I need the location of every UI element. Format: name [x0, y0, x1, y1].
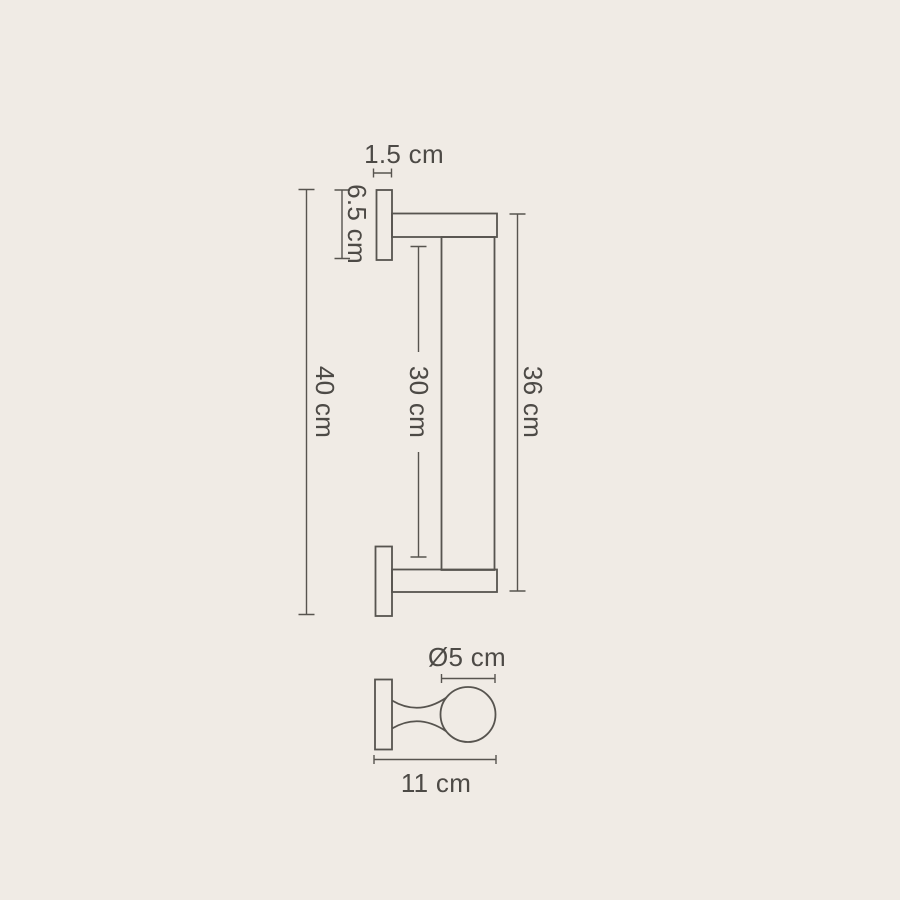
- front-top-arm: [392, 214, 497, 238]
- label-projection-depth: 11 cm: [401, 768, 471, 798]
- front-bottom-arm: [392, 570, 497, 593]
- label-bar-length: 36 cm: [518, 366, 548, 438]
- drawing-canvas: 1.5 cm 6.5 cm 40 cm 30 cm 36 cm Ø5 cm 11…: [0, 0, 900, 900]
- front-top-wall-plate: [377, 190, 393, 260]
- side-neck-bottom-curve: [392, 721, 447, 731]
- dim-line-projection-depth: [374, 755, 496, 764]
- side-wall-plate: [375, 680, 392, 750]
- side-neck-top-curve: [392, 698, 447, 708]
- label-bar-diameter: Ø5 cm: [428, 642, 506, 672]
- label-inner-length: 30 cm: [404, 366, 434, 438]
- dim-line-bar-diameter: [442, 674, 496, 683]
- front-elevation-view: [376, 190, 498, 616]
- dimension-lines: [299, 169, 526, 765]
- side-profile-view: [375, 680, 496, 750]
- front-rail-bar: [442, 237, 495, 570]
- side-bar-end-circle: [441, 687, 496, 742]
- dimension-drawing: 1.5 cm 6.5 cm 40 cm 30 cm 36 cm Ø5 cm 11…: [0, 0, 900, 900]
- label-plate-thickness: 1.5 cm: [364, 139, 444, 169]
- label-plate-height: 6.5 cm: [342, 184, 372, 264]
- front-bottom-wall-plate: [376, 547, 393, 617]
- dim-line-plate-thickness: [374, 169, 392, 178]
- label-overall-height: 40 cm: [310, 366, 340, 438]
